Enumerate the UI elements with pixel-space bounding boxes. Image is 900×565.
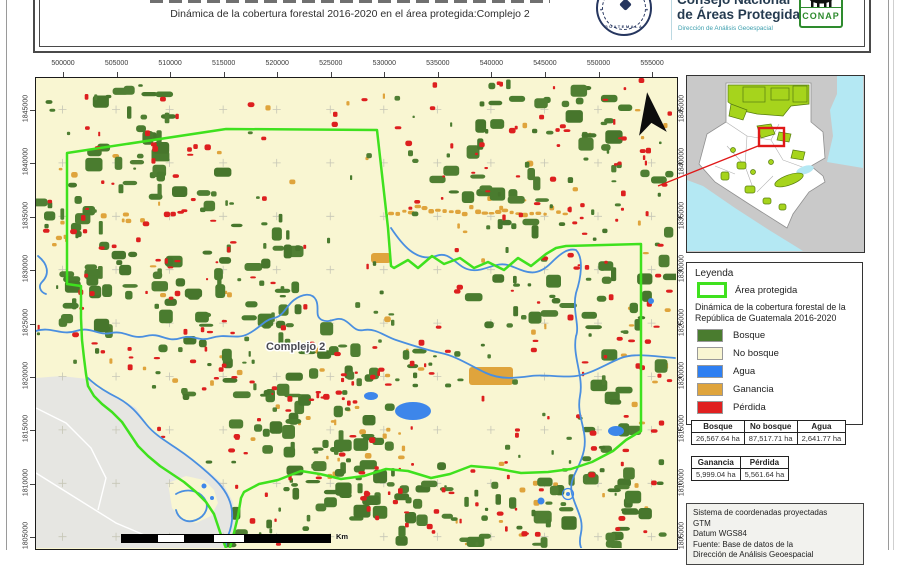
scale-unit-label: Km	[336, 532, 348, 541]
y-tick-mark	[30, 163, 35, 164]
y-tick-label: 1820000	[679, 356, 686, 396]
y-tick-label: 1815000	[679, 409, 686, 449]
y-tick-mark	[30, 324, 35, 325]
inset-map	[686, 75, 865, 253]
y-tick-mark	[30, 537, 35, 538]
legend-item: Pérdida	[697, 401, 854, 414]
conap-logo: CONAP	[799, 0, 843, 28]
table-value-cell: 2,641.77 ha	[797, 433, 846, 445]
table-value-cell: 26,567.64 ha	[692, 433, 745, 445]
info-box: Sistema de coordenadas proyectadasGTMDat…	[686, 503, 864, 565]
seal-dot: •	[646, 8, 648, 14]
inset-map-canvas	[687, 76, 863, 251]
x-tick-label: 515000	[202, 60, 246, 67]
legend-area-row: Área protegida	[697, 282, 854, 298]
info-line: Datum WGS84	[693, 529, 857, 540]
y-tick-mark	[30, 484, 35, 485]
table-header-cell: No bosque	[744, 421, 797, 433]
table-header-cell: Bosque	[692, 421, 745, 433]
x-tick-label: 510000	[148, 60, 192, 67]
y-tick-label: 1830000	[679, 249, 686, 289]
table-value-cell: 5,999.04 ha	[692, 469, 741, 481]
org-name-line1: Consejo Nacional	[677, 0, 790, 7]
legend-item: No bosque	[697, 347, 854, 360]
y-tick-label: 1845000	[679, 89, 686, 129]
page-edge-right	[888, 0, 889, 550]
legend-swatch	[697, 365, 723, 378]
x-tick-label: 500000	[41, 60, 85, 67]
legend-panel: Leyenda Área protegida Dinámica de la co…	[686, 262, 863, 425]
x-tick-mark	[224, 72, 225, 77]
info-line: Sistema de coordenadas proyectadas	[693, 508, 857, 519]
x-tick-mark	[491, 72, 492, 77]
x-tick-mark	[384, 72, 385, 77]
table-value-cell: 5,561.64 ha	[740, 469, 789, 481]
area-protegida-swatch	[697, 282, 727, 298]
x-tick-label: 530000	[362, 60, 406, 67]
y-tick-label: 1820000	[23, 356, 30, 396]
legend-swatch	[697, 329, 723, 342]
y-tick-mark	[677, 217, 682, 218]
y-tick-label: 1835000	[23, 195, 30, 235]
y-tick-label: 1810000	[679, 462, 686, 502]
legend-swatch	[697, 383, 723, 396]
legend-swatch	[697, 347, 723, 360]
table-header-cell: Ganancia	[692, 457, 741, 469]
stats-table-cover: BosqueNo bosqueAgua26,567.64 ha87,517.71…	[691, 420, 846, 445]
y-tick-mark	[30, 430, 35, 431]
y-tick-mark	[30, 217, 35, 218]
y-tick-mark	[677, 270, 682, 271]
legend-item: Ganancia	[697, 383, 854, 396]
map-canvas: Complejo 2	[36, 78, 676, 548]
table-value-cell: 87,517.71 ha	[744, 433, 797, 445]
x-tick-mark	[545, 72, 546, 77]
y-tick-label: 1825000	[679, 302, 686, 342]
legend-item-label: Bosque	[733, 330, 765, 341]
y-tick-label: 1825000	[23, 302, 30, 342]
x-tick-label: 535000	[416, 60, 460, 67]
x-tick-label: 520000	[255, 60, 299, 67]
y-tick-mark	[677, 377, 682, 378]
stats-table-change: GananciaPérdida5,999.04 ha5,561.64 ha	[691, 456, 789, 481]
logo-divider	[671, 0, 672, 40]
x-tick-mark	[652, 72, 653, 77]
x-tick-label: 555000	[630, 60, 674, 67]
map-frame: Complejo 2 Km	[35, 77, 678, 550]
legend-item: Agua	[697, 365, 854, 378]
map-subtitle: Dinámica de la cobertura forestal 2016-2…	[100, 8, 600, 20]
x-tick-label: 550000	[577, 60, 621, 67]
x-tick-mark	[438, 72, 439, 77]
legend-item-label: No bosque	[733, 348, 779, 359]
y-tick-label: 1815000	[23, 409, 30, 449]
legend-item: Bosque	[697, 329, 854, 342]
y-tick-label: 1840000	[23, 142, 30, 182]
x-tick-label: 540000	[469, 60, 513, 67]
legend-items: BosqueNo bosqueAguaGananciaPérdida	[695, 329, 854, 414]
y-tick-mark	[677, 110, 682, 111]
legend-item-label: Agua	[733, 366, 755, 377]
legend-swatch	[697, 401, 723, 414]
y-tick-mark	[30, 110, 35, 111]
map-area-label: Complejo 2	[266, 341, 325, 353]
main-title-clipped	[150, 0, 550, 3]
y-tick-mark	[677, 430, 682, 431]
info-line: Dirección de Análisis Geoespacial	[693, 550, 857, 561]
org-name-line2: de Áreas Protegidas	[677, 7, 808, 22]
x-tick-mark	[599, 72, 600, 77]
y-tick-mark	[30, 377, 35, 378]
x-tick-mark	[170, 72, 171, 77]
legend-item-label: Ganancia	[733, 384, 774, 395]
y-tick-label: 1810000	[23, 462, 30, 502]
info-line: Fuente: Base de datos de la	[693, 540, 857, 551]
org-department: Dirección de Análisis Geoespacial	[678, 25, 773, 32]
legend-title: Leyenda	[695, 268, 854, 279]
table-header-cell: Pérdida	[740, 457, 789, 469]
y-tick-label: 1830000	[23, 249, 30, 289]
y-tick-mark	[30, 270, 35, 271]
legend-area-label: Área protegida	[735, 285, 797, 296]
x-tick-mark	[117, 72, 118, 77]
x-tick-label: 525000	[309, 60, 353, 67]
conap-label: CONAP	[801, 7, 841, 21]
x-tick-label: 545000	[523, 60, 567, 67]
y-tick-mark	[677, 324, 682, 325]
table-header-cell: Agua	[797, 421, 846, 433]
info-line: GTM	[693, 519, 857, 530]
x-tick-mark	[277, 72, 278, 77]
y-tick-mark	[677, 484, 682, 485]
x-tick-mark	[331, 72, 332, 77]
seal-text: GUATEMALA	[598, 24, 650, 29]
y-tick-mark	[677, 537, 682, 538]
seal-dot: •	[600, 8, 602, 14]
y-tick-label: 1840000	[679, 142, 686, 182]
x-tick-mark	[63, 72, 64, 77]
legend-item-label: Pérdida	[733, 402, 766, 413]
legend-subtitle: Dinámica de la cobertura forestal de la …	[695, 302, 854, 324]
x-tick-label: 505000	[95, 60, 139, 67]
page-edge-shadow	[893, 0, 894, 550]
scale-bar	[121, 534, 331, 543]
y-tick-label: 1835000	[679, 195, 686, 235]
y-tick-mark	[677, 163, 682, 164]
page-edge-left	[6, 0, 7, 550]
y-tick-label: 1845000	[23, 89, 30, 129]
